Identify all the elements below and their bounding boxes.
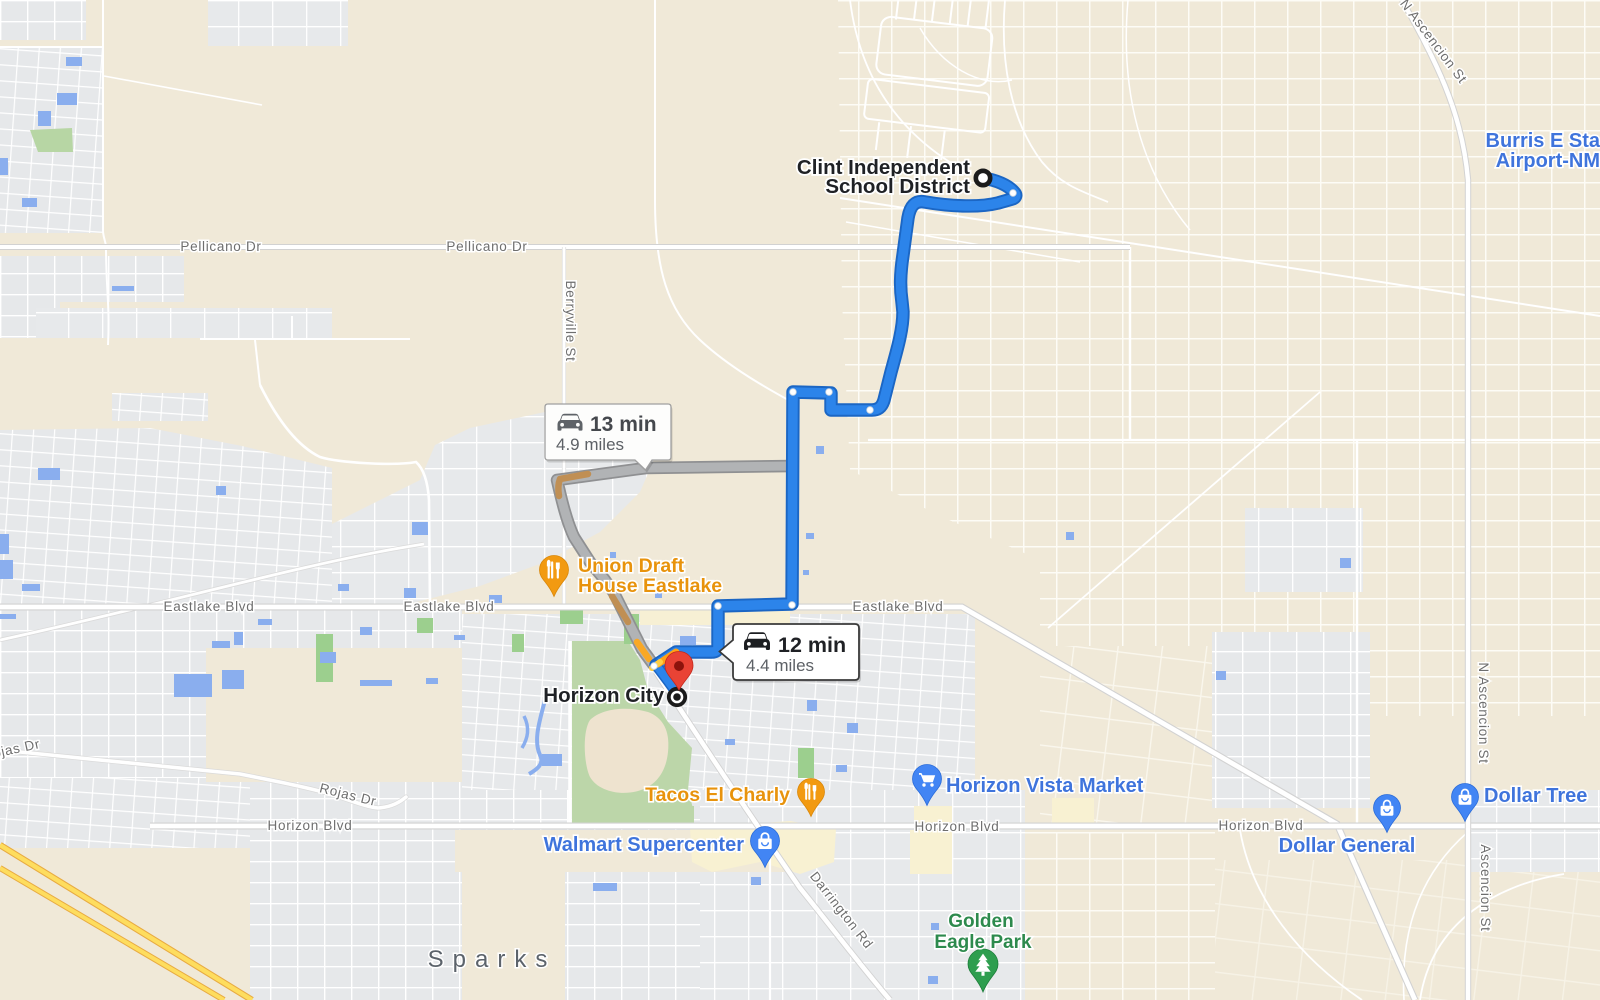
svg-text:Eastlake Blvd: Eastlake Blvd — [853, 599, 944, 614]
svg-text:Horizon City: Horizon City — [543, 684, 664, 707]
svg-text:Dollar General: Dollar General — [1279, 835, 1416, 857]
svg-text:Horizon Blvd: Horizon Blvd — [915, 819, 1000, 834]
svg-text:Ascencion St: Ascencion St — [1478, 844, 1493, 931]
svg-text:Pellicano Dr: Pellicano Dr — [446, 239, 527, 254]
svg-text:Airport-NM: Airport-NM — [1496, 150, 1600, 172]
svg-text:Golden: Golden — [948, 911, 1013, 932]
svg-text:4.4 miles: 4.4 miles — [746, 656, 814, 675]
svg-text:12 min: 12 min — [778, 633, 846, 657]
svg-text:13 min: 13 min — [590, 413, 657, 436]
svg-text:Eastlake Blvd: Eastlake Blvd — [164, 599, 255, 614]
svg-text:Berryville St: Berryville St — [563, 280, 578, 361]
svg-text:Walmart Supercenter: Walmart Supercenter — [544, 834, 745, 856]
svg-text:4.9 miles: 4.9 miles — [556, 435, 624, 454]
svg-text:Horizon Vista Market: Horizon Vista Market — [946, 775, 1144, 797]
svg-text:Tacos El Charly: Tacos El Charly — [645, 784, 790, 806]
svg-text:House Eastlake: House Eastlake — [578, 575, 722, 597]
svg-text:Eastlake Blvd: Eastlake Blvd — [404, 599, 495, 614]
svg-text:Pellicano Dr: Pellicano Dr — [180, 239, 261, 254]
svg-text:Horizon Blvd: Horizon Blvd — [268, 818, 353, 833]
svg-text:School District: School District — [825, 175, 970, 198]
svg-text:Horizon Blvd: Horizon Blvd — [1219, 818, 1304, 833]
svg-text:Dollar Tree: Dollar Tree — [1484, 785, 1587, 807]
svg-text:Union Draft: Union Draft — [578, 555, 685, 577]
svg-text:N Ascencion St: N Ascencion St — [1476, 662, 1491, 763]
svg-text:Sparks: Sparks — [428, 946, 557, 973]
svg-text:Burris E Sta: Burris E Sta — [1486, 130, 1600, 152]
svg-text:Eagle Park: Eagle Park — [934, 932, 1032, 953]
